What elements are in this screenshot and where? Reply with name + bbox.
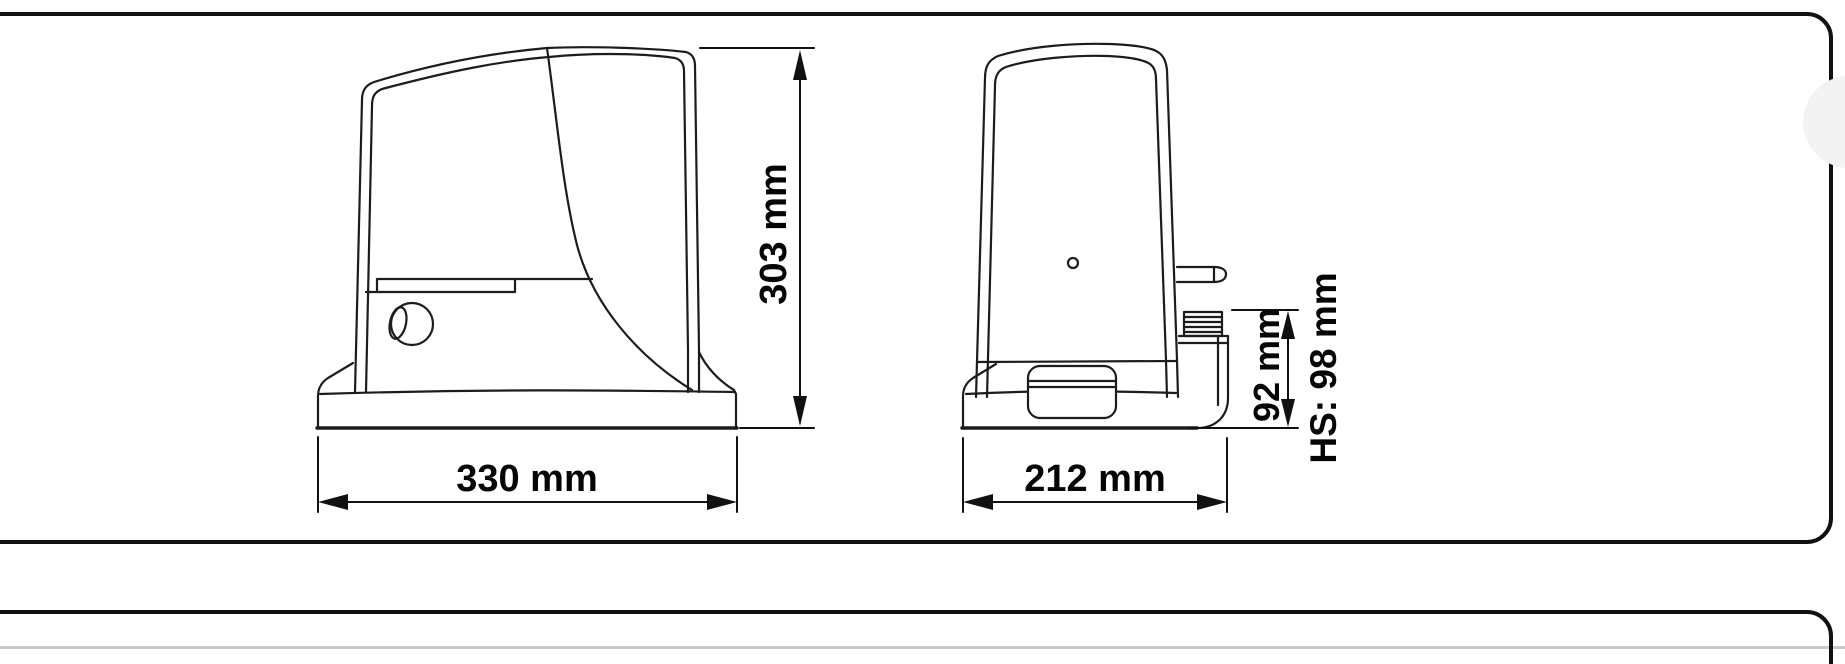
hs-height-label: HS: 98 mm — [1303, 272, 1344, 463]
side-view-drawing — [962, 44, 1228, 428]
side-screw-hole — [1068, 258, 1078, 268]
front-cover-inner-rim — [366, 54, 688, 392]
arrowhead-right — [1197, 494, 1227, 510]
side-cover-seam — [977, 361, 1176, 362]
front-base-right-flare — [699, 352, 736, 428]
arrowhead-bottom — [793, 396, 807, 426]
side-release-lever — [1028, 366, 1116, 418]
side-pinion — [1184, 312, 1222, 336]
front-base-left-flare — [318, 363, 353, 428]
side-limit-rod — [1177, 267, 1226, 282]
dimension-diagram: 330 mm 303 mm 212 mm 92 mm HS: 98 mm — [0, 0, 1845, 664]
front-keyhole-rim — [387, 306, 409, 341]
arrowhead-top — [793, 50, 807, 80]
front-release-door — [366, 279, 592, 292]
arrowhead-left — [318, 494, 348, 510]
front-base-top-edge — [320, 390, 735, 394]
side-cover-inner-rim — [987, 56, 1167, 397]
side-cover-outline — [976, 44, 1178, 397]
front-height-label: 303 mm — [753, 163, 795, 305]
arrowhead-left — [963, 494, 993, 510]
front-view-drawing — [317, 47, 737, 428]
front-cover-outline — [355, 47, 699, 392]
pinion-height-label: 92 mm — [1246, 308, 1287, 422]
page: 330 mm 303 mm 212 mm 92 mm HS: 98 mm — [0, 0, 1845, 664]
side-pinion-bracket — [1179, 336, 1228, 428]
side-base-left-flare — [963, 364, 996, 428]
front-cover-sweep-edge — [547, 48, 692, 390]
side-depth-label: 212 mm — [1024, 458, 1166, 500]
front-width-label: 330 mm — [456, 458, 598, 500]
arrowhead-right — [707, 494, 737, 510]
